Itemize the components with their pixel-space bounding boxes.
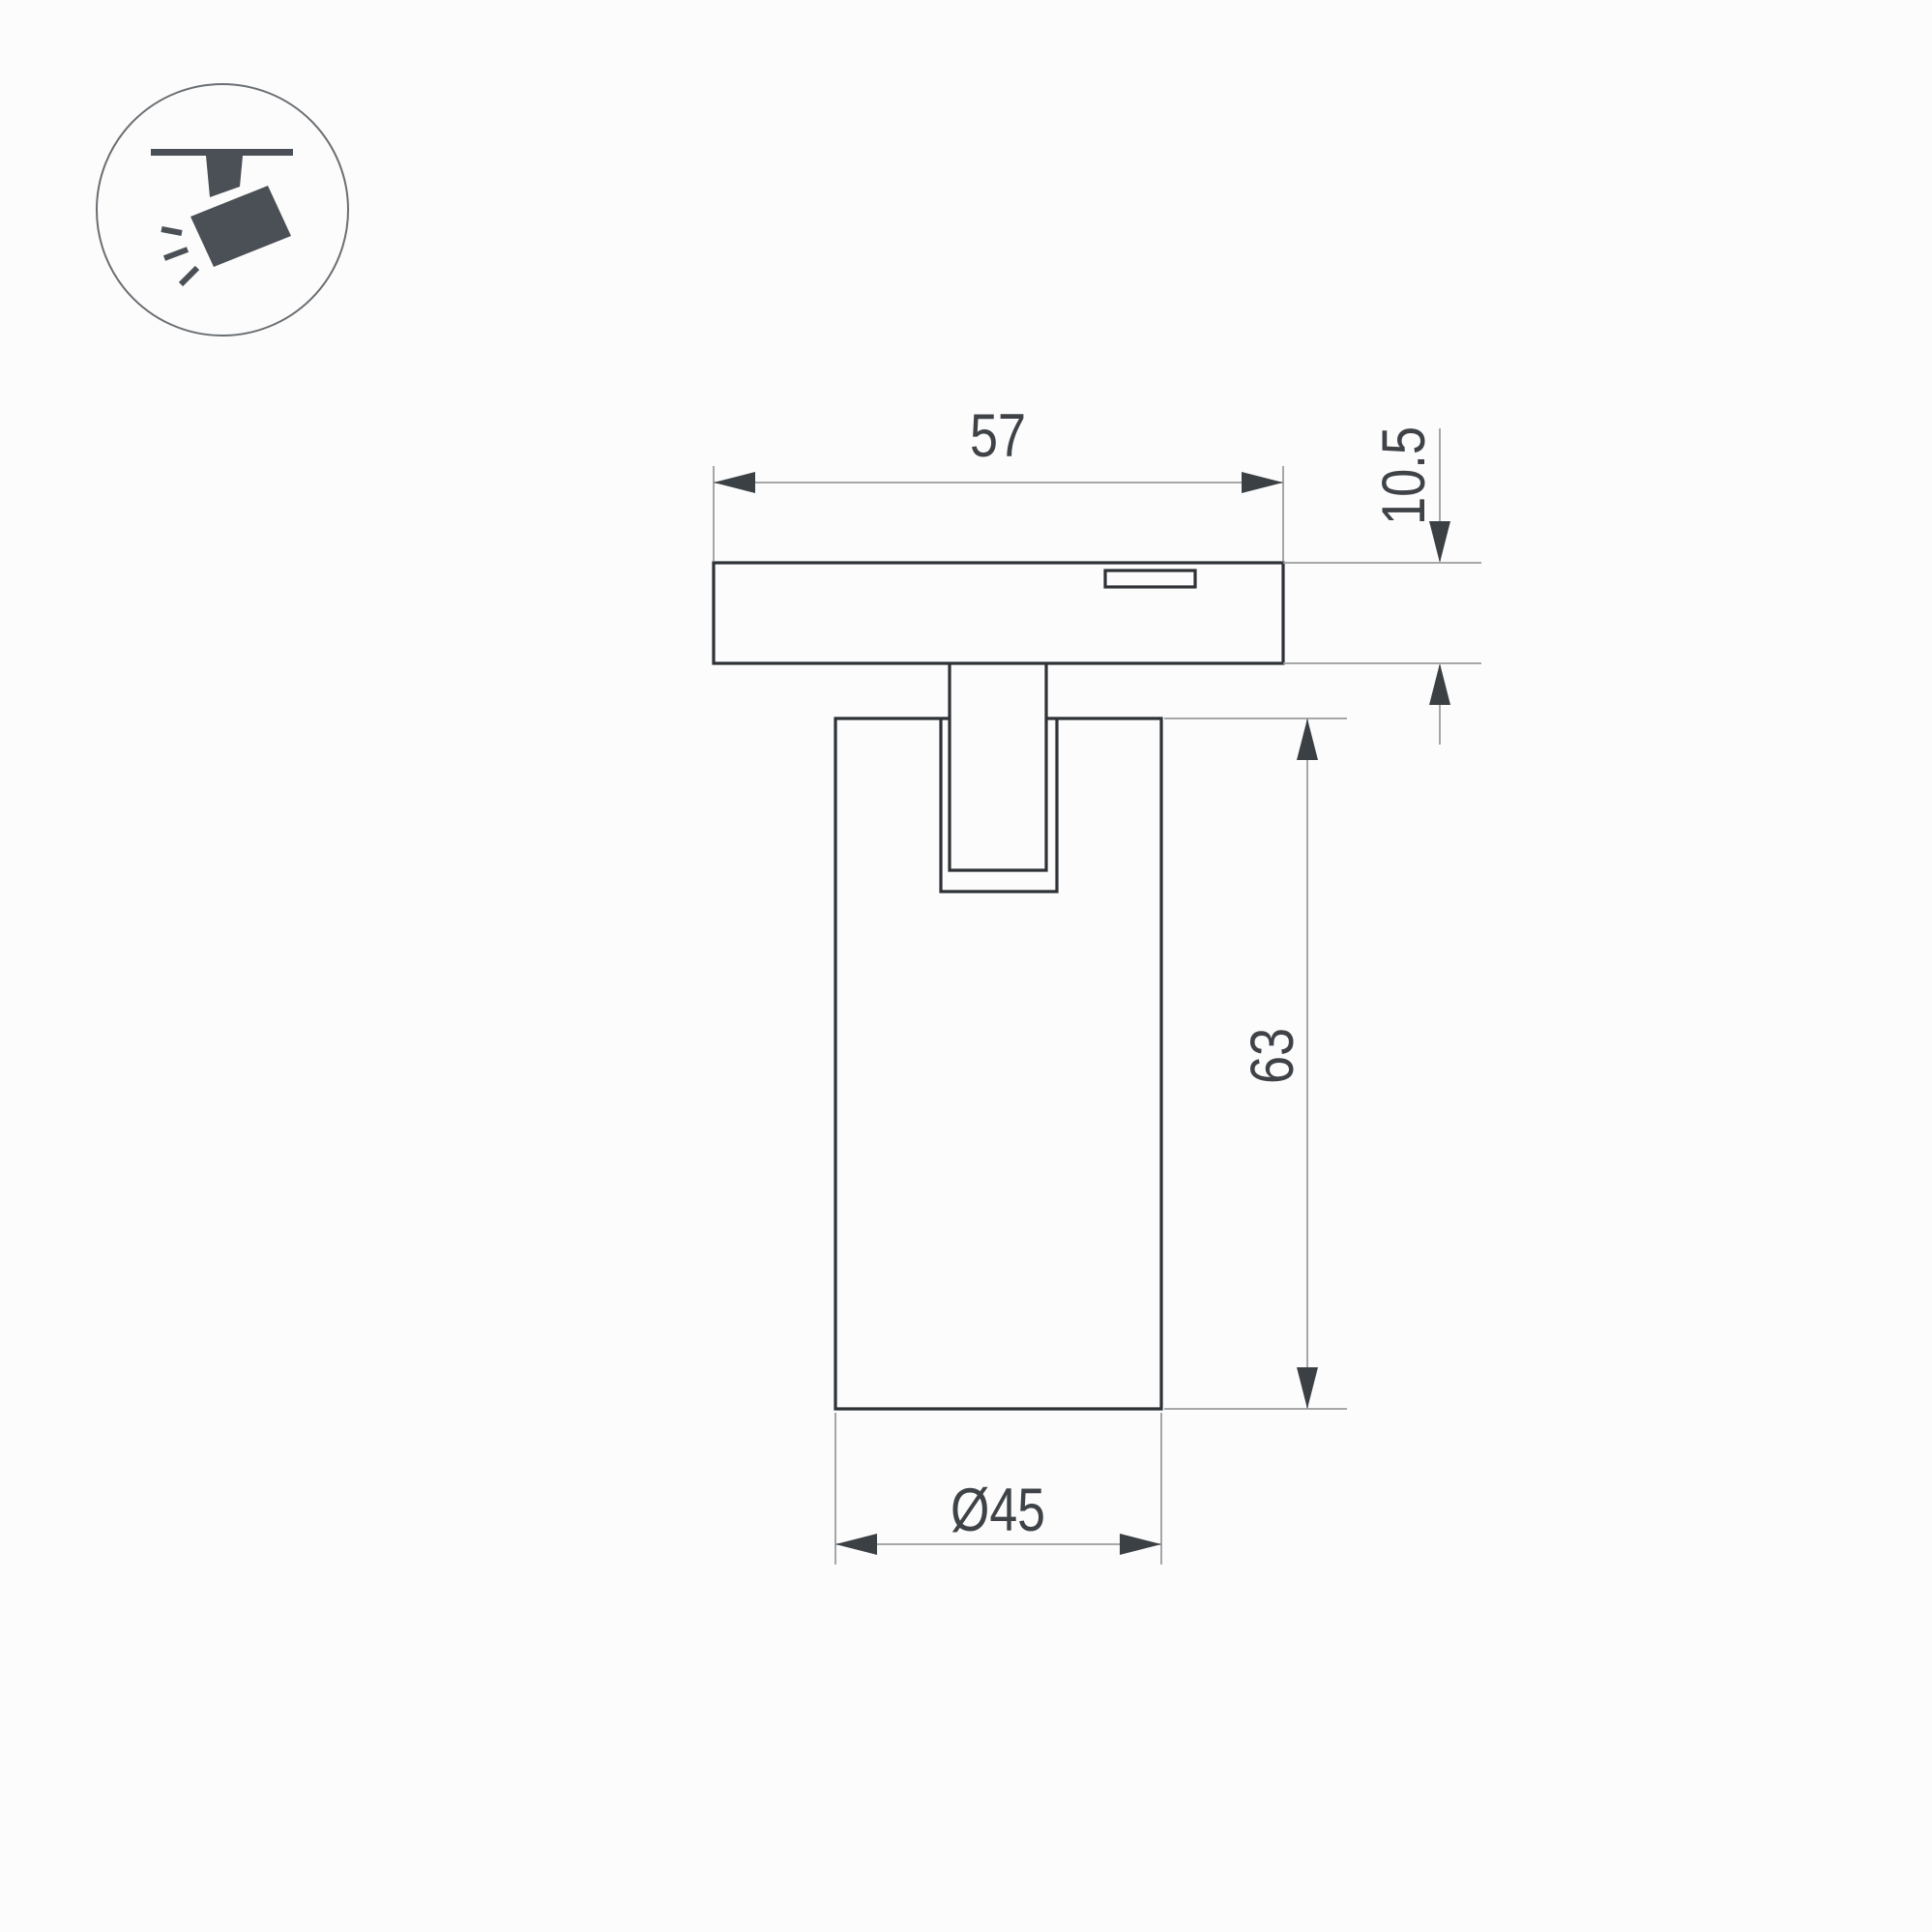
track-adapter-outline bbox=[714, 563, 1283, 663]
dimension-value-body-diameter: Ø45 bbox=[951, 1477, 1045, 1544]
arrow-up-icon bbox=[1429, 663, 1450, 705]
arrow-up-icon bbox=[1297, 718, 1318, 760]
icon-light-ray-icon bbox=[161, 229, 182, 233]
dimension-value-adapter-height: 10.5 bbox=[1370, 426, 1438, 525]
arrow-right-icon bbox=[1120, 1534, 1161, 1555]
fixture-outline-drawing bbox=[714, 563, 1283, 1409]
arrow-left-icon bbox=[714, 472, 755, 493]
spec-sheet-page: 57 10.5 63 Ø45 bbox=[0, 0, 1932, 1932]
dimension-adapter-width: 57 bbox=[714, 402, 1283, 561]
arrow-down-icon bbox=[1297, 1367, 1318, 1409]
dimension-value-body-height: 63 bbox=[1239, 1028, 1306, 1084]
dimension-body-diameter: Ø45 bbox=[835, 1413, 1161, 1565]
dimension-body-height: 63 bbox=[1164, 718, 1347, 1409]
dimension-adapter-height: 10.5 bbox=[1283, 426, 1481, 745]
arrow-right-icon bbox=[1242, 472, 1283, 493]
technical-drawing-canvas: 57 10.5 63 Ø45 bbox=[0, 0, 1932, 1932]
dimension-value-adapter-width: 57 bbox=[970, 402, 1026, 470]
connector-stem-fill bbox=[950, 663, 1046, 870]
arrow-down-icon bbox=[1429, 521, 1450, 563]
arrow-left-icon bbox=[835, 1534, 877, 1555]
icon-track-bar bbox=[151, 149, 293, 156]
track-light-icon bbox=[97, 84, 348, 336]
